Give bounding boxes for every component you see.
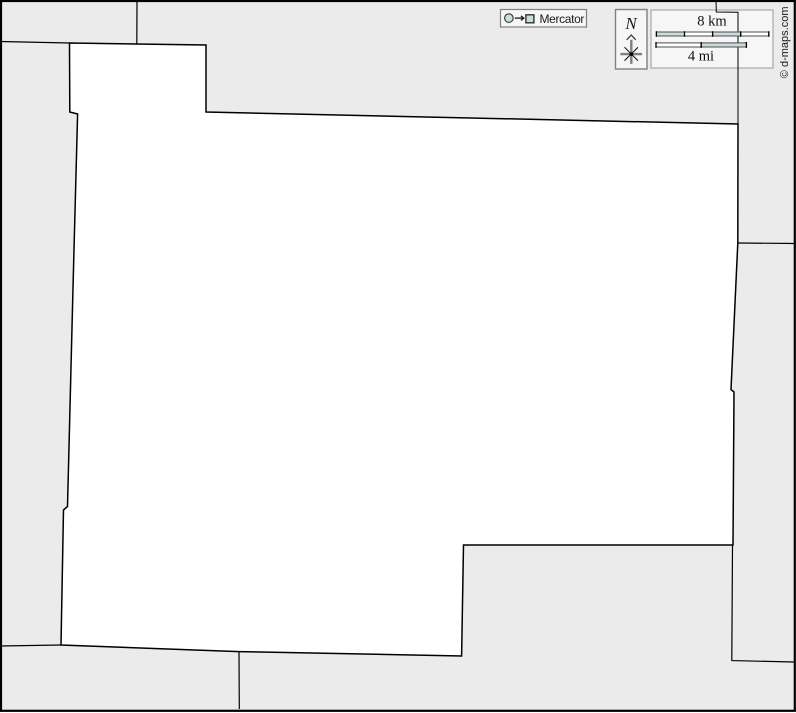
svg-text:Mercator: Mercator xyxy=(540,12,585,26)
svg-text:© d-maps.com: © d-maps.com xyxy=(779,7,791,79)
svg-text:N: N xyxy=(624,14,638,33)
svg-text:4 mi: 4 mi xyxy=(688,49,714,65)
svg-text:8 km: 8 km xyxy=(697,14,727,30)
